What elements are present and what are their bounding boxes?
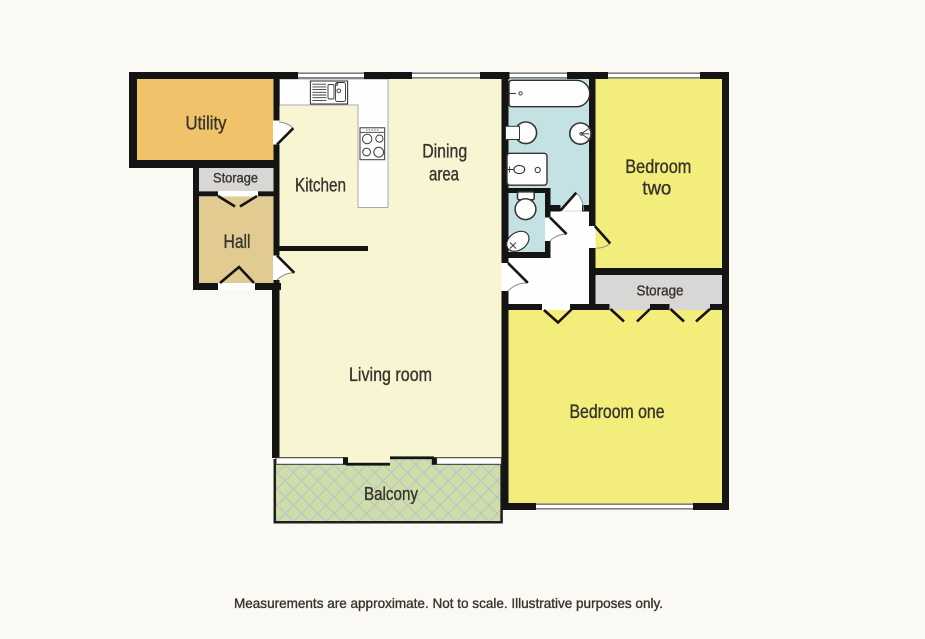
svg-text:Bedroom: Bedroom [625,157,691,178]
svg-text:two: two [642,178,671,199]
svg-text:Storage: Storage [213,170,258,186]
svg-text:area: area [429,165,459,186]
svg-text:Storage: Storage [637,282,684,299]
svg-text:Balcony: Balcony [364,483,419,504]
svg-text:Bedroom one: Bedroom one [570,402,665,423]
svg-text:Kitchen: Kitchen [295,176,346,197]
svg-text:Measurements are approximate.: Measurements are approximate. Not to sca… [234,595,663,611]
svg-text:Utility: Utility [186,114,227,135]
svg-text:Dining: Dining [422,142,467,163]
svg-text:Hall: Hall [224,232,251,253]
svg-text:Living room: Living room [349,365,432,386]
